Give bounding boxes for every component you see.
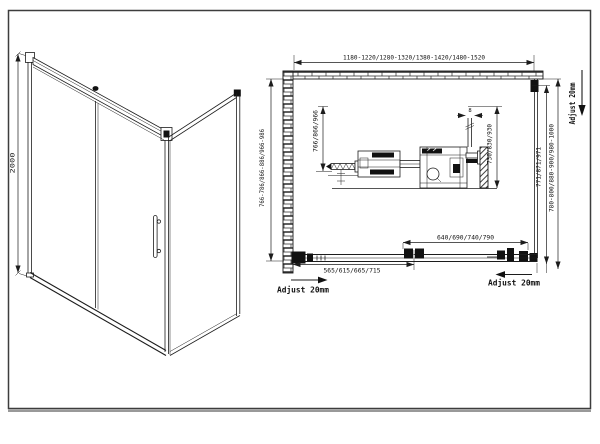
profile-housing [358, 151, 400, 177]
depth-right-inner-label: 771/871/971 [535, 147, 543, 187]
adjust-top-right-label: Adjust 20mm [567, 82, 577, 124]
door-divider [96, 101, 99, 310]
side-panel [170, 90, 241, 356]
roller-housing [420, 147, 467, 188]
top-rail [33, 58, 172, 141]
wall-bracket [466, 151, 482, 164]
adjust-bottom-left: Adjust 20mm [277, 277, 329, 295]
adjust-top-right: Adjust 20mm [567, 70, 586, 125]
adjust-left-arrow-icon [496, 271, 533, 278]
left-post [26, 53, 35, 278]
adjust-bottom-left-label: Adjust 20mm [277, 285, 329, 295]
height-dimension: 2000 [9, 52, 28, 277]
door-width-upper-label: 640/690/740/790 [437, 234, 494, 242]
track-left-bracket [292, 252, 306, 264]
detail-depth-label: 730/830/930 [486, 124, 494, 164]
adjust-right-arrow-icon [291, 277, 328, 284]
width-options-label: 1180-1220/1280-1320/1380-1420/1480-1520 [343, 54, 485, 62]
drawing-canvas: 2000 [0, 0, 600, 444]
screw [326, 161, 361, 172]
depth-left-outer-label: 766-786/866-886/966-986 [258, 129, 266, 207]
glass-thickness-label: 8 [468, 108, 471, 114]
left-wall [283, 71, 293, 273]
depth-left-inner-label: 766/866/966 [312, 110, 320, 152]
door-width-upper-dimension: 640/690/740/790 [403, 234, 528, 251]
front-right-edge [165, 137, 169, 354]
adjust-down-arrow-icon [578, 70, 585, 116]
adjuster-shaft [400, 161, 420, 168]
adjust-bottom-right-label: Adjust 20mm [488, 278, 540, 288]
perspective-view: 2000 [9, 52, 241, 356]
door-width-lower-label: 565/615/665/715 [324, 267, 381, 275]
wall-profile-detail: 8 730/830/930 [326, 107, 502, 189]
adjust-bottom-right: Adjust 20mm [488, 271, 540, 287]
rail-stopper-knob [93, 86, 99, 91]
plan-view: 1180-1220/1280-1320/1380-1420/1480-1520 [258, 54, 586, 295]
depth-left-outer-dimension: 766-786/866-886/966-986 [258, 79, 284, 261]
depth-right-outer-label: 780-800/880-900/980-1000 [548, 124, 556, 212]
depth-left-inner-dimension: 766/866/966 [312, 107, 346, 186]
glass-thickness-dimension: 8 [457, 108, 483, 116]
height-dimension-label: 2000 [9, 152, 17, 173]
top-wall [283, 71, 543, 79]
door-handle [154, 216, 161, 258]
glass-edge [466, 118, 475, 147]
